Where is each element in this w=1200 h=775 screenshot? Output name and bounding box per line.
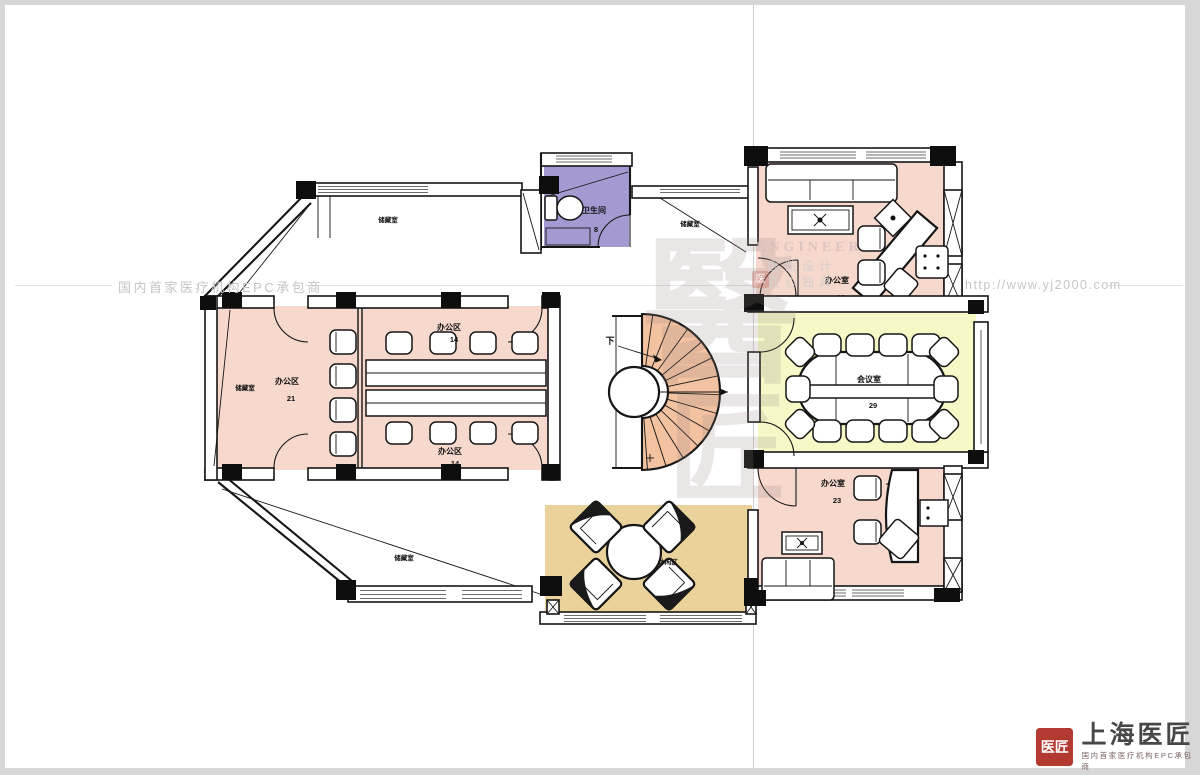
floorplan-page: { "watermarks": { "left_tagline": "国内首家医…: [0, 0, 1200, 775]
office-left-area: 21: [287, 394, 295, 403]
stair-direction-arrow: [720, 389, 728, 396]
open-office-top-label: 办公区: [437, 322, 461, 332]
stair-well: [609, 367, 659, 417]
meeting-label: 会议室: [857, 374, 881, 384]
sofa-bottom-office: [762, 558, 834, 600]
bathroom-label: 卫生间: [582, 205, 606, 215]
meeting-area: 29: [869, 401, 877, 410]
logo-tagline: 国内首家医疗机构EPC承包商: [1081, 750, 1200, 772]
storage-label-a: 储藏室: [377, 215, 398, 224]
logo-seal-icon: 医匠: [1036, 728, 1073, 766]
open-office-top-area: 14: [450, 335, 459, 344]
coffee-table-bottom-office: [782, 532, 822, 554]
floor-plan: 卫生间 8 储藏室 储藏室: [0, 0, 1200, 775]
coffee-table-top-office: [788, 206, 853, 234]
spiral-stair: 下: [605, 314, 728, 470]
conference-table: [798, 352, 946, 424]
storage-label-c: 储藏室: [234, 383, 255, 392]
toilet-icon: [545, 196, 583, 220]
exec-bottom-label: 办公室: [821, 478, 845, 488]
left-wing-office-fill: [216, 306, 548, 470]
storage-label-b: 储藏室: [679, 219, 700, 228]
leisure-label: 休闲区: [657, 557, 678, 566]
roof-wing-top-left: [203, 183, 522, 303]
company-logo: 医匠 上海医匠 国内首家医疗机构EPC承包商: [1036, 722, 1200, 772]
bathroom-area: 8: [594, 225, 598, 234]
open-office-bottom-label: 办公区: [438, 446, 462, 456]
exec-top-label: 办公室: [825, 275, 849, 285]
office-left-label: 办公区: [275, 376, 299, 386]
exec-bottom-area: 23: [833, 496, 841, 505]
logo-company-name: 上海医匠: [1081, 722, 1200, 748]
stair-down-label: 下: [605, 336, 614, 346]
sofa-top-office: [766, 164, 897, 202]
top-corridor-right: [632, 186, 750, 252]
storage-label-d: 储藏室: [393, 553, 414, 562]
roof-wing-bottom-left: 储藏室: [218, 478, 540, 602]
